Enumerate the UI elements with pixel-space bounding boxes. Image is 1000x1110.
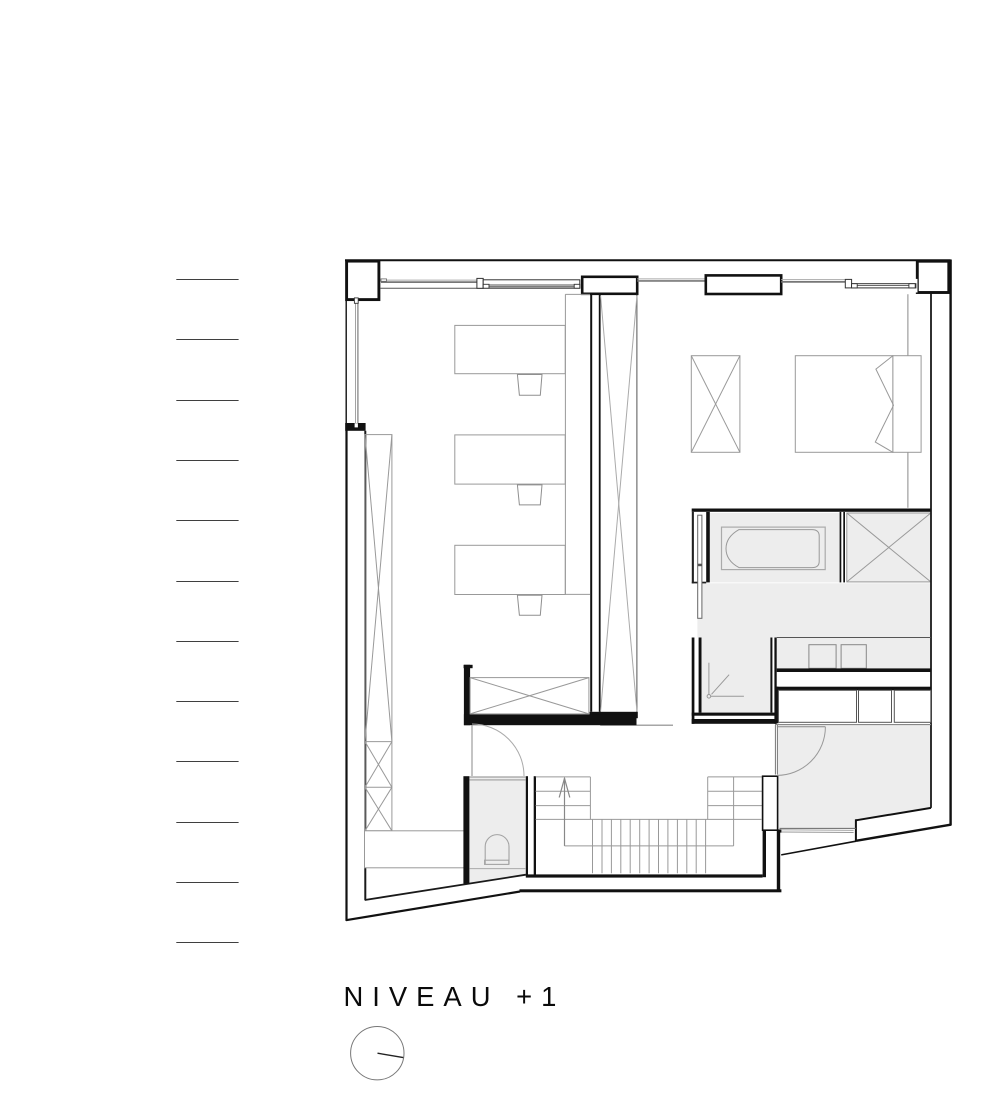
svg-text:NIVEAU +1: NIVEAU +1	[344, 981, 566, 1012]
